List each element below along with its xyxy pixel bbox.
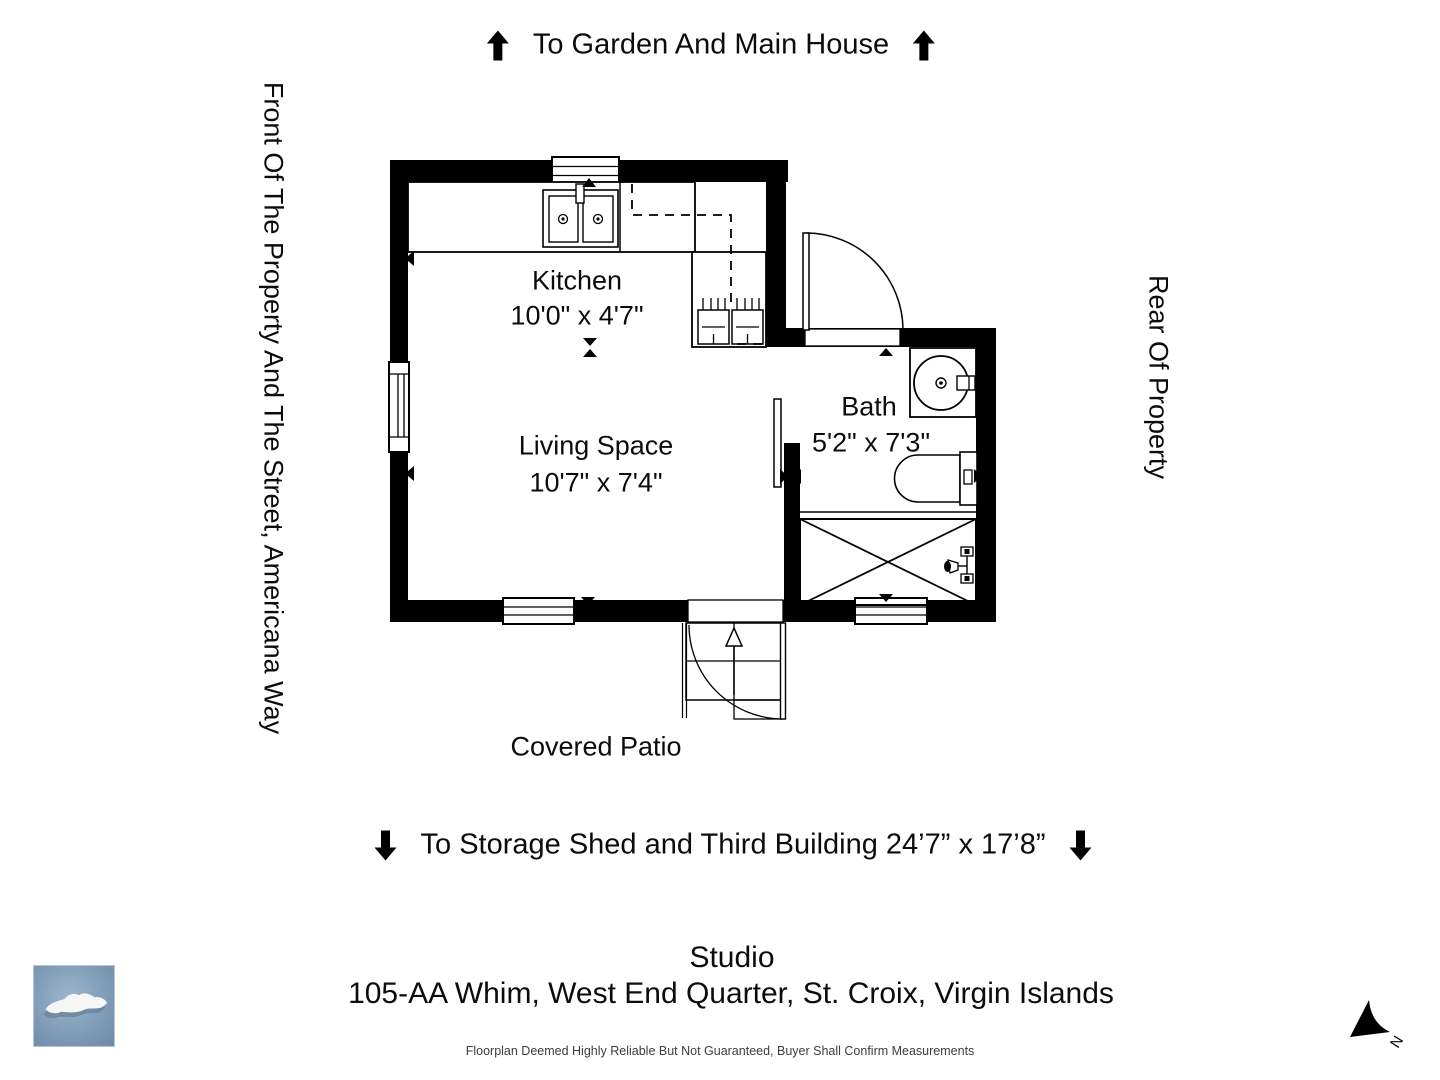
wall-divider (784, 443, 800, 610)
patio-door-and-steps (683, 600, 786, 719)
shower-head-icon (944, 547, 973, 583)
bath-sink-icon (910, 348, 976, 417)
up-arrow-icon (913, 30, 935, 60)
island-thumbnail (33, 965, 115, 1047)
kitchen-name-label: Kitchen (532, 266, 622, 297)
floorplan-page: N To Garden And Main House Front Of The … (0, 0, 1440, 1080)
marker-entry-door (879, 348, 893, 356)
address-label: 105-AA Whim, West End Quarter, St. Croix… (348, 977, 1114, 1011)
north-arrow-icon: N (1350, 1000, 1407, 1051)
kitchen-sink-icon (543, 184, 618, 247)
wall-right-upper (766, 160, 786, 347)
patio-door-leaf (781, 623, 786, 719)
marker-kitchen-dim-top (583, 338, 597, 346)
property-type-label: Studio (689, 941, 774, 975)
north-label: N (1387, 1033, 1407, 1051)
bath-dims-label: 5'2" x 7'3" (812, 428, 930, 459)
bath-name-label: Bath (841, 392, 897, 423)
marker-kitchen-dim-bottom (583, 349, 597, 357)
direction-bottom-label: To Storage Shed and Third Building 24’7”… (421, 829, 1046, 862)
direction-top: To Garden And Main House (487, 29, 935, 62)
bath-fixtures (800, 348, 977, 605)
direction-top-label: To Garden And Main House (533, 29, 889, 62)
floorplan-drawing: N (0, 0, 1440, 1080)
up-arrow-icon (487, 30, 509, 60)
window-left (389, 362, 409, 452)
entry-door (803, 233, 903, 346)
passage-door-leaf (774, 399, 781, 487)
st-croix-island-icon (34, 966, 114, 1046)
living-dims-label: 10'7" x 7'4" (529, 468, 662, 499)
kitchen-dims-label: 10'0" x 4'7" (510, 301, 643, 332)
window-bottom-bath (855, 598, 927, 624)
covered-patio-label: Covered Patio (510, 732, 681, 763)
window-top (552, 157, 619, 184)
direction-left-label: Front Of The Property And The Street, Am… (258, 82, 289, 734)
toilet-icon (894, 452, 977, 505)
entry-door-arc (806, 233, 903, 330)
direction-right-label: Rear Of Property (1143, 275, 1174, 479)
disclaimer-label: Floorplan Deemed Highly Reliable But Not… (466, 1044, 975, 1058)
shower-icon (800, 512, 976, 605)
down-arrow-icon (1069, 830, 1091, 860)
entry-door-leaf (803, 233, 809, 330)
living-name-label: Living Space (519, 431, 674, 462)
down-arrow-icon (375, 830, 397, 860)
direction-bottom: To Storage Shed and Third Building 24’7”… (375, 829, 1092, 862)
window-bottom-living (503, 598, 574, 624)
